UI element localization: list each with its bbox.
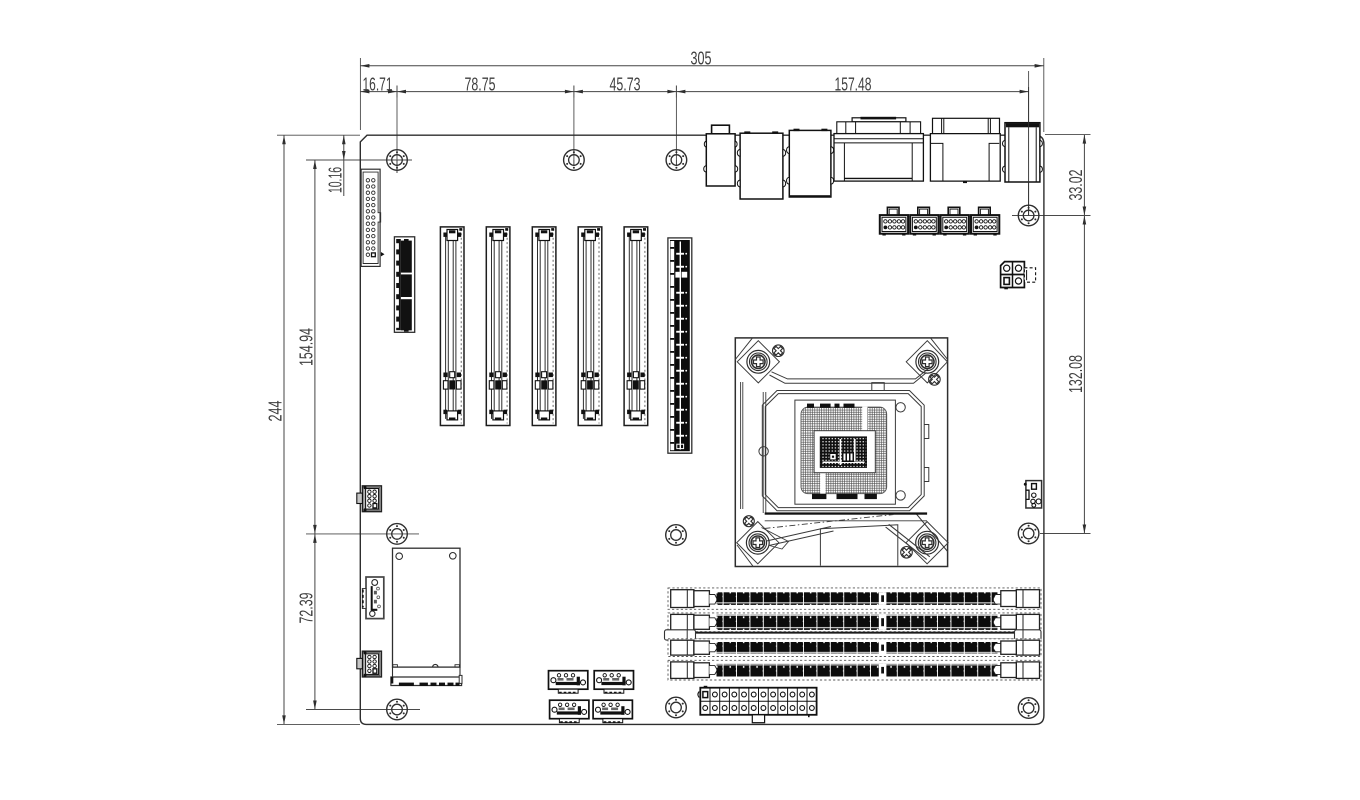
svg-text:132.08: 132.08 xyxy=(1066,355,1086,393)
svg-text:16.71: 16.71 xyxy=(363,74,393,94)
svg-text:10.16: 10.16 xyxy=(326,167,346,193)
svg-text:244: 244 xyxy=(266,401,286,422)
svg-text:45.73: 45.73 xyxy=(610,74,641,94)
svg-text:78.75: 78.75 xyxy=(465,74,496,94)
svg-text:305: 305 xyxy=(691,49,712,69)
svg-text:72.39: 72.39 xyxy=(297,593,317,624)
svg-text:154.94: 154.94 xyxy=(297,328,317,366)
svg-text:33.02: 33.02 xyxy=(1066,170,1086,201)
svg-text:157.48: 157.48 xyxy=(835,74,872,94)
